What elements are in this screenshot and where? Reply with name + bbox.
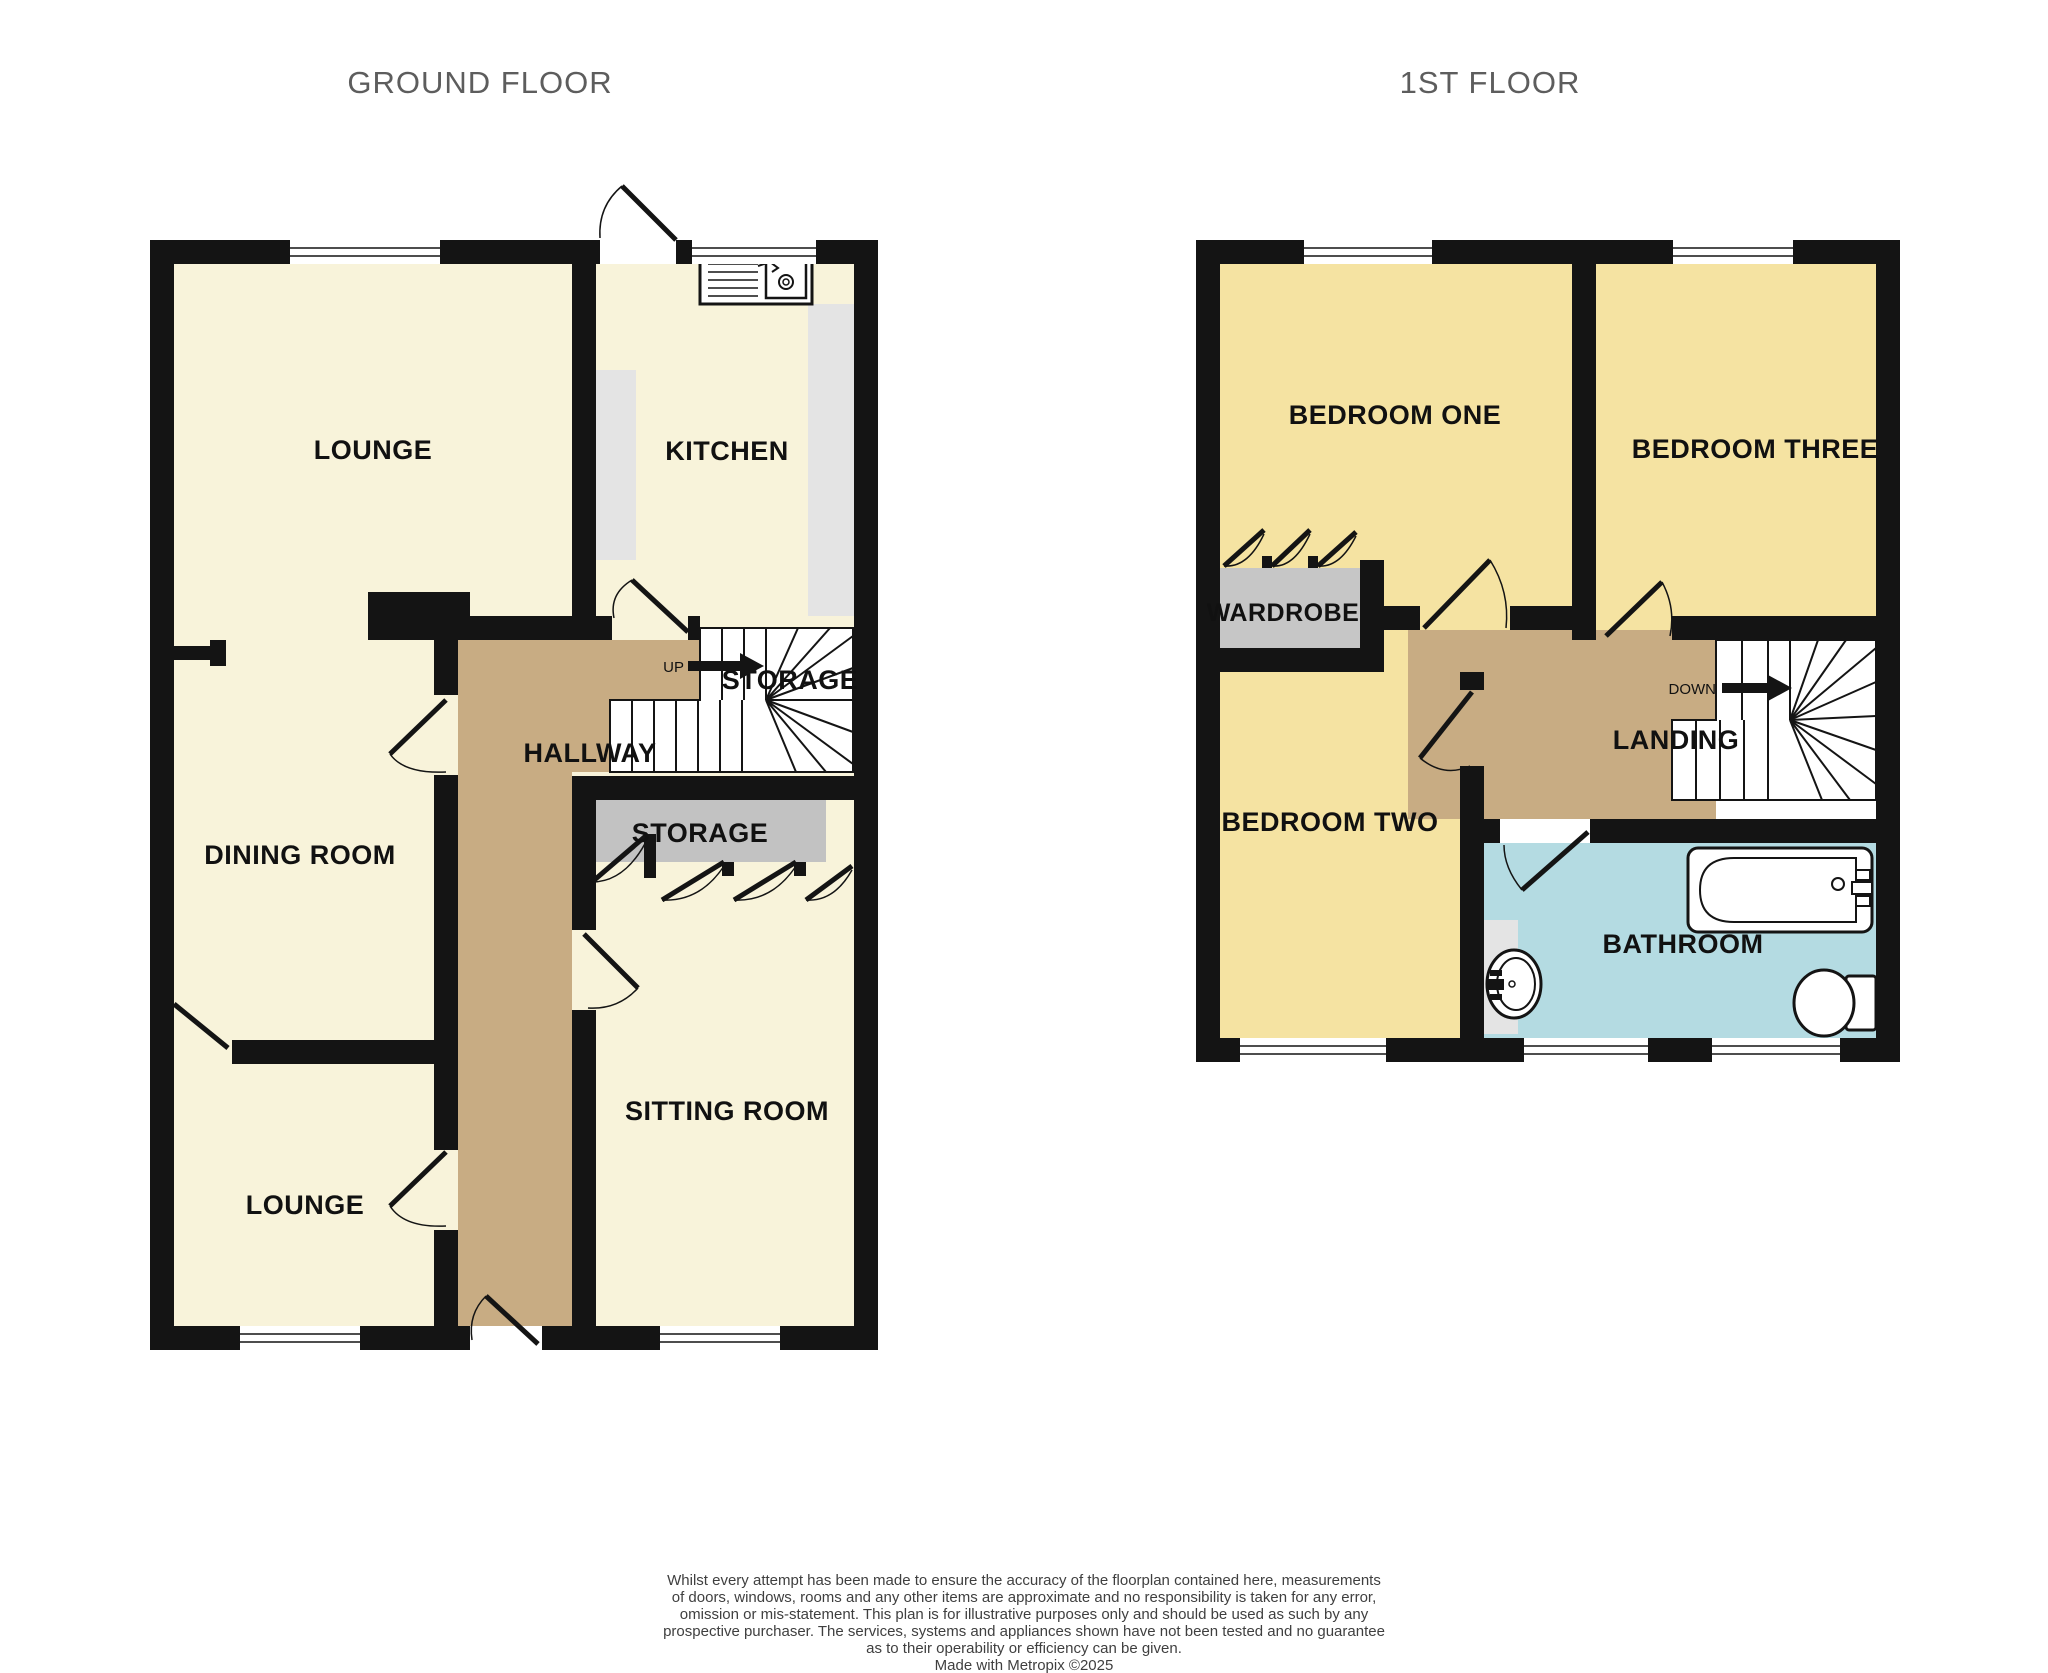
- bathtub-icon: [1688, 848, 1872, 932]
- window: [1304, 240, 1432, 264]
- ground-floor-title: GROUND FLOOR: [347, 65, 612, 100]
- label-lounge-bottom: LOUNGE: [246, 1190, 365, 1220]
- disclaimer-line: of doors, windows, rooms and any other i…: [0, 1589, 2048, 1606]
- label-kitchen: KITCHEN: [665, 436, 789, 466]
- label-bedroom-three: BEDROOM THREE: [1632, 434, 1879, 464]
- disclaimer-line: as to their operability or efficiency ca…: [0, 1640, 2048, 1657]
- label-sitting-room: SITTING ROOM: [625, 1096, 829, 1126]
- label-wardrobe: WARDROBE: [1207, 599, 1360, 627]
- disclaimer-line: Whilst every attempt has been made to en…: [0, 1572, 2048, 1589]
- label-down: DOWN: [1669, 681, 1717, 698]
- window: [1673, 240, 1793, 264]
- first-floor-plan: BEDROOM ONE BEDROOM THREE WARDROBE BEDRO…: [1196, 240, 1900, 1062]
- toilet-icon: [1794, 970, 1876, 1036]
- label-bedroom-one: BEDROOM ONE: [1289, 400, 1502, 430]
- window: [240, 1326, 360, 1350]
- metropix-credit: Made with Metropix ©2025: [0, 1657, 2048, 1673]
- window: [660, 1326, 780, 1350]
- first-floor-title: 1ST FLOOR: [1400, 65, 1581, 100]
- label-bedroom-two: BEDROOM TWO: [1222, 807, 1439, 837]
- floorplan-drawing: GROUND FLOOR 1ST FLOOR: [0, 0, 2048, 1673]
- ground-floor-plan: LOUNGE KITCHEN DINING ROOM HALLWAY STORA…: [150, 186, 878, 1350]
- window: [1240, 1038, 1386, 1062]
- label-storage-closet: STORAGE: [632, 818, 769, 848]
- label-lounge-top: LOUNGE: [314, 435, 433, 465]
- kitchen-door-opening: [600, 240, 676, 264]
- window: [1712, 1038, 1840, 1062]
- window: [692, 240, 816, 264]
- disclaimer-line: omission or mis-statement. This plan is …: [0, 1606, 2048, 1623]
- disclaimer-text: Whilst every attempt has been made to en…: [0, 1572, 2048, 1673]
- door-arc-kitchen-external: [600, 186, 676, 240]
- label-dining-room: DINING ROOM: [204, 840, 396, 870]
- label-landing: LANDING: [1613, 725, 1740, 755]
- kitchen-counter-right: [808, 304, 854, 616]
- label-bathroom: BATHROOM: [1603, 929, 1764, 959]
- window: [1524, 1038, 1648, 1062]
- disclaimer-line: prospective purchaser. The services, sys…: [0, 1623, 2048, 1640]
- floorplan-page: GROUND FLOOR 1ST FLOOR: [0, 0, 2048, 1673]
- kitchen-counter-left: [596, 370, 636, 560]
- label-up: UP: [663, 659, 684, 676]
- window: [290, 240, 440, 264]
- label-hallway: HALLWAY: [523, 738, 656, 768]
